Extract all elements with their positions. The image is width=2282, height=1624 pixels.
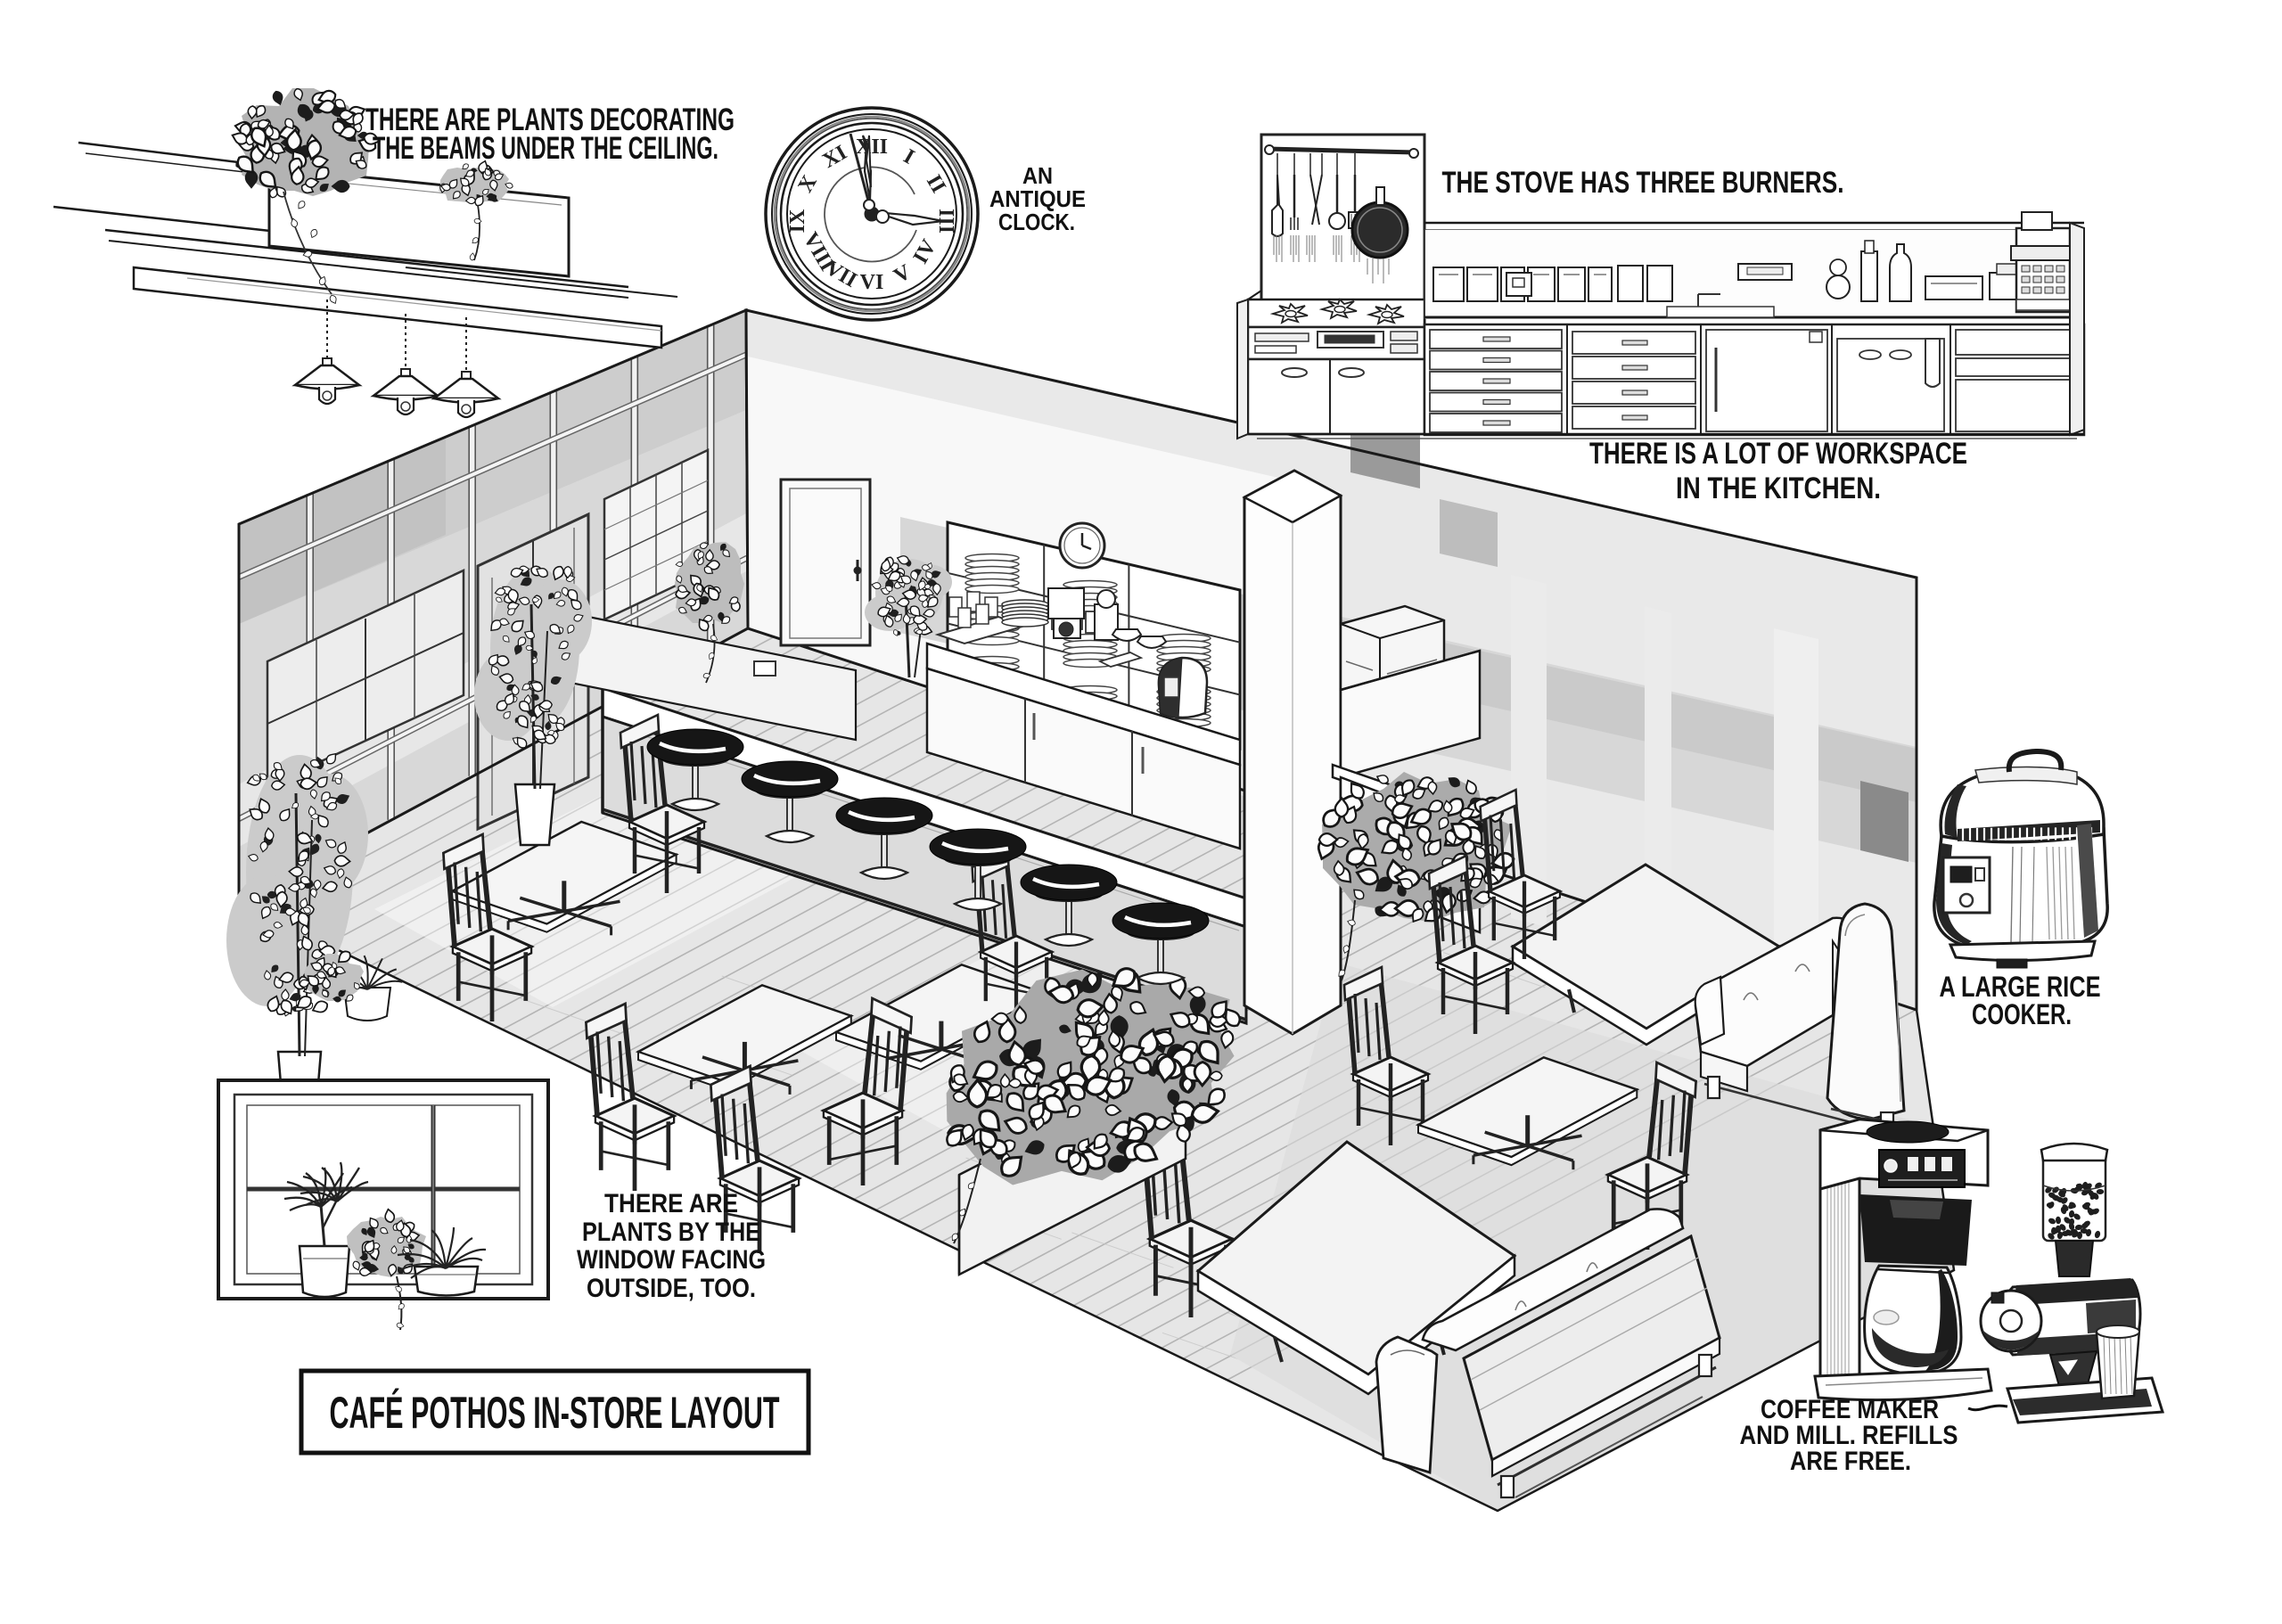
svg-text:WINDOW FACING: WINDOW FACING bbox=[577, 1245, 766, 1275]
svg-text:COOKER.: COOKER. bbox=[1972, 998, 2072, 1030]
svg-text:THERE IS A LOT OF WORKSPACE: THERE IS A LOT OF WORKSPACE bbox=[1589, 437, 1967, 471]
svg-text:PLANTS BY THE: PLANTS BY THE bbox=[582, 1218, 760, 1247]
svg-text:THE BEAMS UNDER THE CEILING.: THE BEAMS UNDER THE CEILING. bbox=[373, 131, 718, 166]
svg-text:VI: VI bbox=[860, 271, 884, 294]
svg-text:XII: XII bbox=[856, 135, 888, 159]
svg-text:IN THE KITCHEN.: IN THE KITCHEN. bbox=[1676, 472, 1881, 505]
svg-text:IX: IX bbox=[786, 209, 809, 233]
svg-text:CLOCK.: CLOCK. bbox=[998, 209, 1075, 235]
svg-text:OUTSIDE, TOO.: OUTSIDE, TOO. bbox=[587, 1274, 756, 1303]
svg-text:ARE FREE.: ARE FREE. bbox=[1790, 1447, 1911, 1476]
svg-text:THERE ARE: THERE ARE bbox=[604, 1189, 738, 1218]
svg-text:THE STOVE HAS THREE BURNERS.: THE STOVE HAS THREE BURNERS. bbox=[1442, 166, 1844, 200]
svg-text:CAFÉ POTHOS IN-STORE LAYOUT: CAFÉ POTHOS IN-STORE LAYOUT bbox=[330, 1388, 780, 1438]
